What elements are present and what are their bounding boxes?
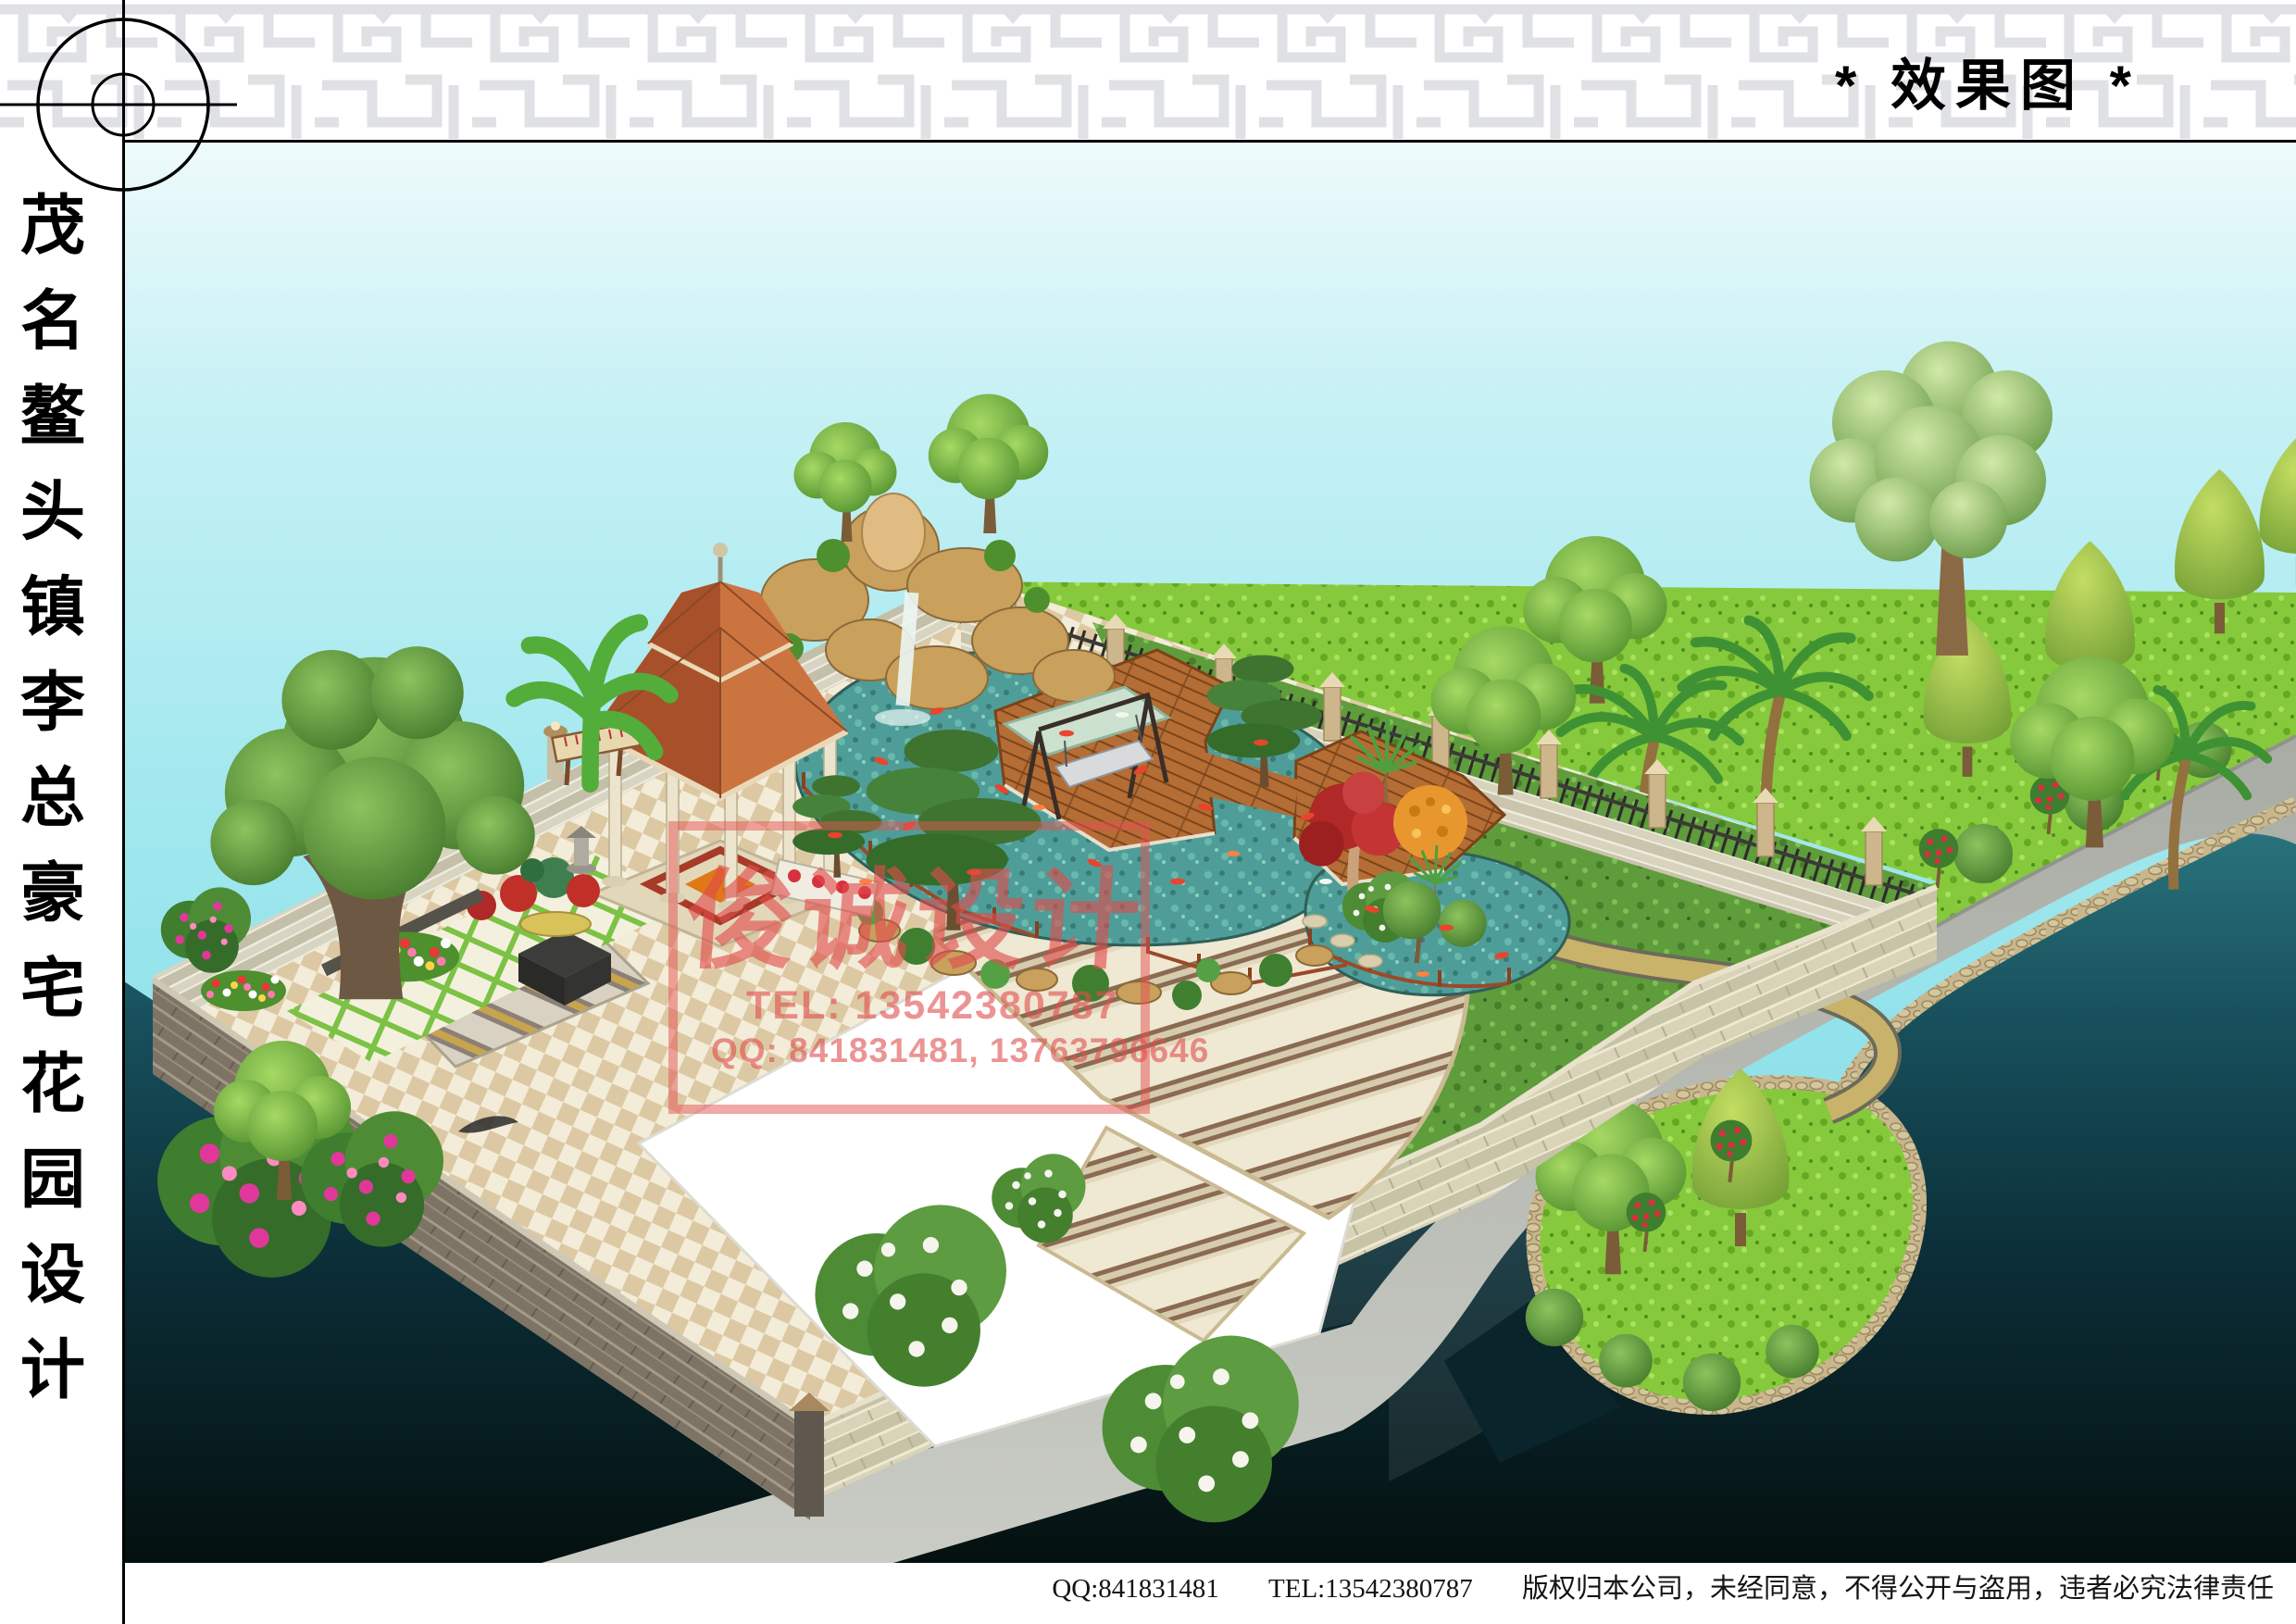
footer-tel: TEL:13542380787 bbox=[1268, 1574, 1473, 1604]
marigold-ball bbox=[1393, 785, 1467, 859]
watermark-tel: TEL: 13542380787 bbox=[746, 983, 1119, 1029]
watermark-qq: QQ: 841831481, 13763796646 bbox=[711, 1031, 1209, 1070]
project-title-vertical: 茂名鳌头镇李总豪宅花园设计 bbox=[13, 191, 81, 1430]
garden-rendering bbox=[124, 143, 2296, 1563]
watermark-brand: 俊诚设计 bbox=[681, 831, 1155, 990]
corner-pillar bbox=[794, 1411, 824, 1517]
copyright-line: QQ:841831481 TEL:13542380787 版权归本公司，未经同意… bbox=[1009, 1567, 2274, 1605]
footer-notice: 版权归本公司，未经同意，不得公开与盗用，违者必究法律责任 bbox=[1522, 1574, 2274, 1604]
presentation-board bbox=[0, 0, 2296, 1624]
footer-qq: QQ:841831481 bbox=[1052, 1574, 1218, 1604]
sheet-title: * 效果图 * bbox=[1835, 41, 2140, 121]
